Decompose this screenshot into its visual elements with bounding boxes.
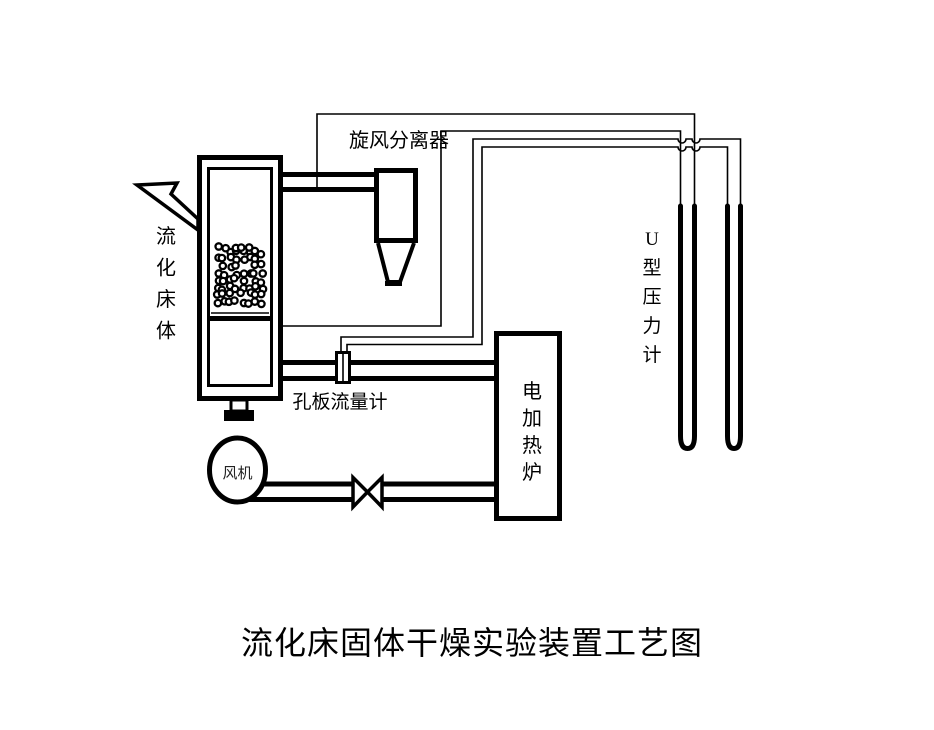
orifice-label: 孔板流量计 [292, 391, 387, 413]
particle [219, 255, 225, 261]
particle [252, 283, 258, 289]
particle [215, 300, 221, 306]
particle [231, 275, 237, 281]
particle [241, 278, 247, 284]
particle [258, 261, 264, 267]
process-diagram: 电加热炉 风机 旋风分离器 流化床体 U型压力计 孔板流量计 流化床固体干燥实验… [0, 0, 934, 730]
fan-label: 风机 [222, 465, 252, 482]
exhaust-arrow-icon [137, 183, 198, 230]
particle [220, 278, 226, 284]
particle [219, 290, 225, 296]
particle [232, 262, 238, 268]
particle [231, 297, 237, 303]
u-tube-manometers [681, 206, 741, 449]
particle [237, 290, 243, 296]
cyclone-label: 旋风分离器 [349, 129, 449, 152]
particle [241, 271, 247, 277]
particle [260, 270, 266, 276]
pedestal-neck [231, 400, 247, 411]
particle [258, 301, 264, 307]
cyclone-cone [378, 243, 414, 282]
orifice-flowmeter [337, 353, 350, 383]
fan: 风机 [210, 438, 266, 502]
particle [246, 244, 252, 250]
manometer-label: U型压力计 [642, 229, 661, 366]
u-tube-1 [681, 206, 695, 449]
particle [250, 270, 256, 276]
particle [223, 245, 229, 251]
u-tube-2 [728, 206, 741, 449]
valve-right-triangle [368, 478, 383, 508]
pedestal-base [224, 410, 254, 421]
particle [252, 298, 258, 304]
particle [216, 243, 222, 249]
particle [258, 251, 264, 257]
fluidized-bed-label: 流化床体 [156, 225, 176, 343]
particle [238, 244, 244, 250]
electric-heater: 电加热炉 [497, 334, 560, 519]
cyclone-body [377, 171, 416, 241]
valve-icon [353, 478, 382, 508]
diagram-title: 流化床固体干燥实验装置工艺图 [241, 625, 703, 661]
particle [220, 263, 226, 269]
cyclone-separator [377, 171, 416, 284]
particle [227, 290, 233, 296]
diagram-canvas: 电加热炉 风机 旋风分离器 流化床体 U型压力计 孔板流量计 流化床固体干燥实验… [0, 0, 934, 730]
particle [258, 291, 264, 297]
